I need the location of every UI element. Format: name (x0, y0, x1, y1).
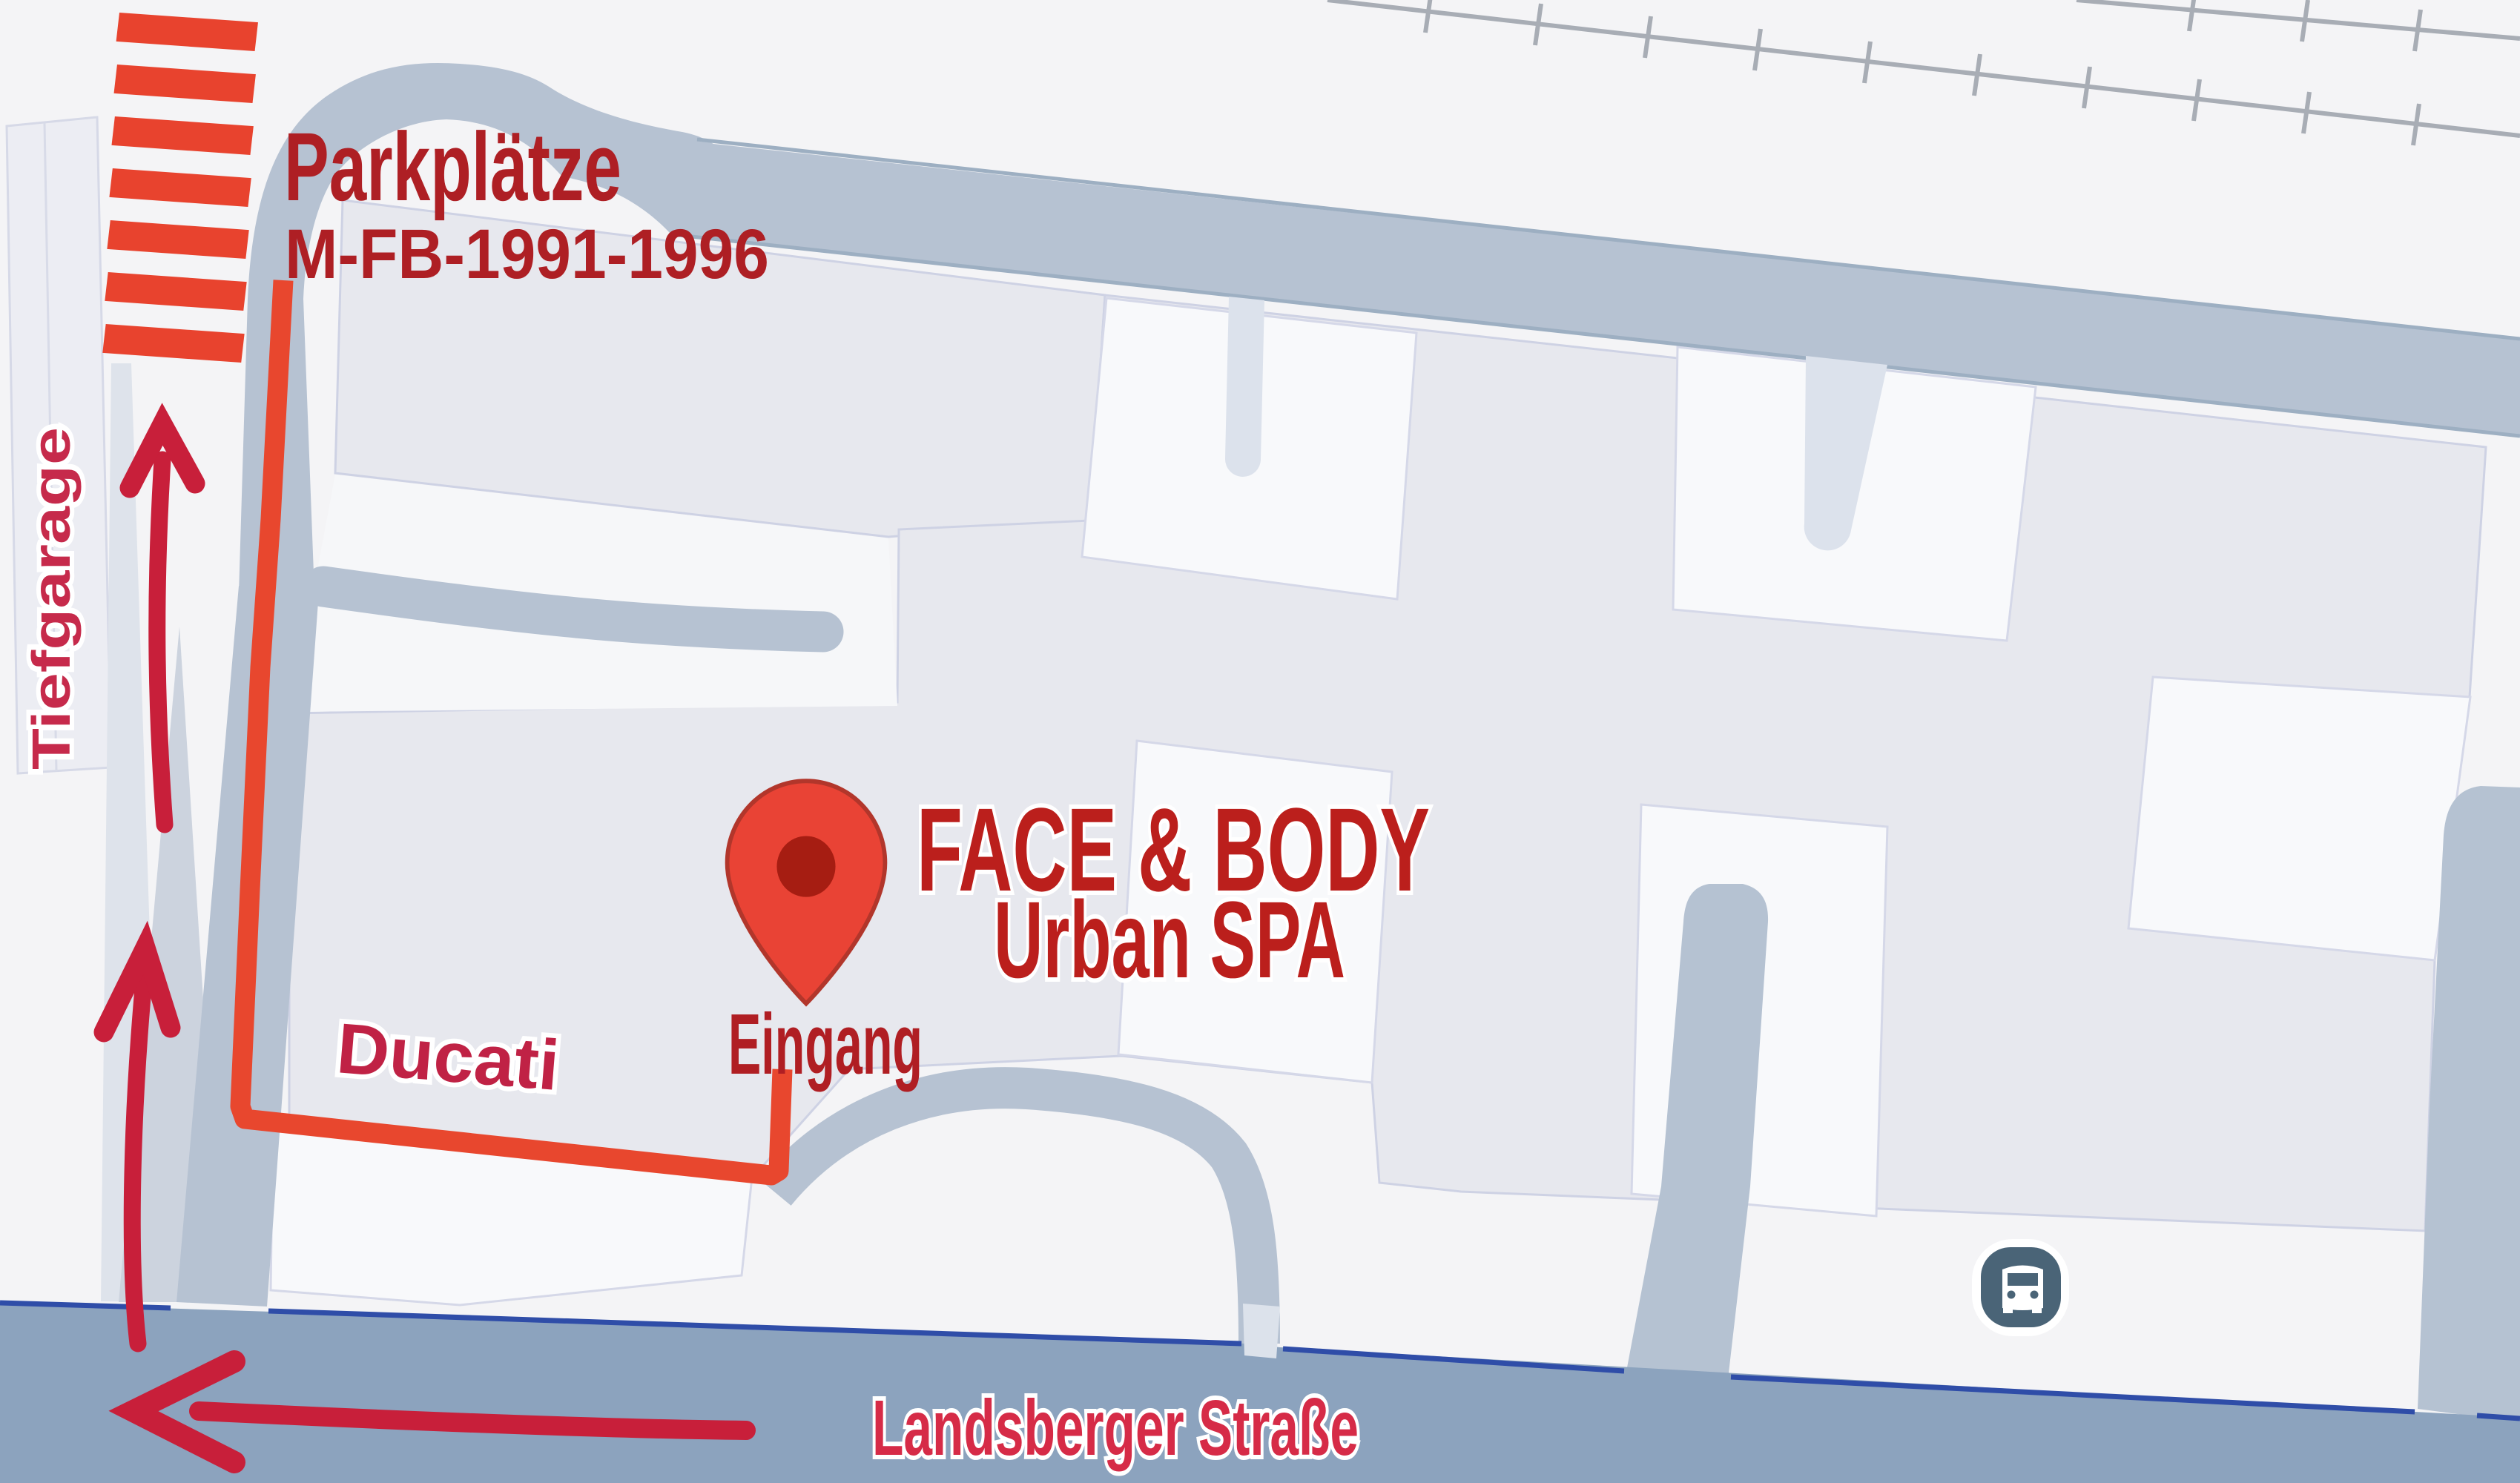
svg-text:Landsberger Straße: Landsberger Straße (872, 1384, 1359, 1472)
svg-text:M-FB-1991-1996: M-FB-1991-1996 (285, 215, 769, 294)
svg-text:Tiefgarage: Tiefgarage (22, 427, 82, 770)
svg-text:Urban SPA: Urban SPA (994, 879, 1345, 1001)
svg-text:Parkplätze: Parkplätze (284, 112, 621, 221)
svg-text:Eingang: Eingang (728, 996, 923, 1092)
